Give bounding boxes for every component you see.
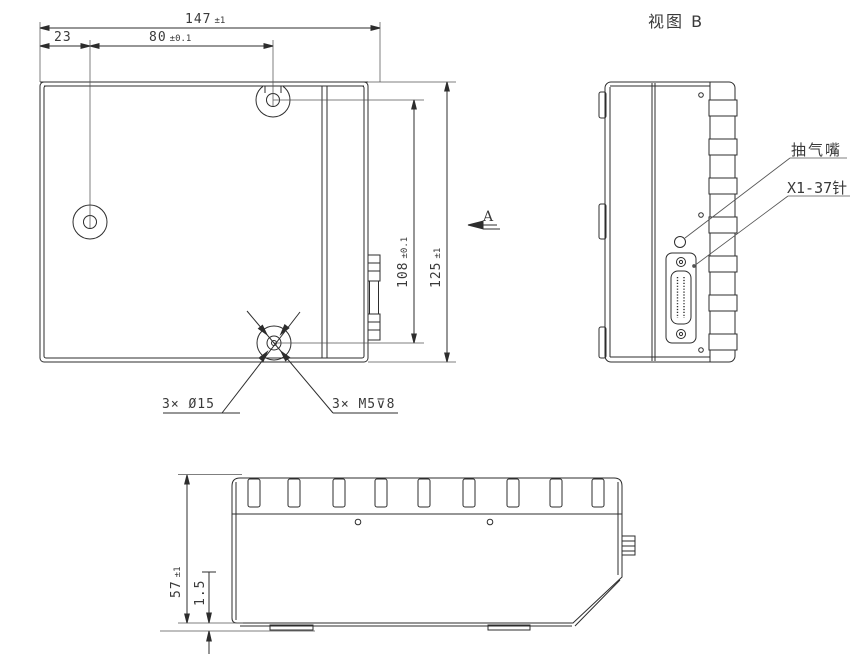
dim-left-offset-value: 23 — [54, 30, 72, 45]
side-connector-tabs — [368, 255, 380, 340]
view-b-title: 视图 B — [648, 8, 704, 32]
dim-base-thickness-value: 1.5 — [193, 580, 208, 606]
cooling-fin-slots-bottom — [248, 479, 604, 507]
connector-callout: X1-37针 — [787, 177, 847, 198]
drawing-linework — [0, 0, 867, 665]
dim-side-height: 57±1 — [169, 567, 184, 599]
side-knob — [622, 536, 635, 555]
dim-total-width-value: 147 — [185, 12, 211, 27]
dim-side-height-tol: ±1 — [173, 567, 183, 578]
front-body-outline — [40, 82, 368, 362]
dimension-lines-bottom — [185, 475, 216, 654]
nozzle-callout: 抽气嘴 — [791, 139, 842, 160]
side-b-inner-lines — [610, 82, 710, 362]
dimension-lines-front — [40, 26, 449, 362]
holes-cbore-callout: 3× Ø15 — [162, 397, 215, 412]
front-body-inner-outline — [44, 86, 364, 358]
dim-left-offset: 23 — [54, 30, 75, 45]
dim-hole-pitch-x-value: 80 — [149, 30, 167, 45]
front-extension-lines — [40, 22, 456, 362]
dim-total-height: 125±1 — [429, 248, 444, 288]
dim-total-height-value: 125 — [429, 262, 444, 288]
view-arrow-label: A — [483, 209, 493, 225]
dim-total-width-tol: ±1 — [214, 16, 225, 26]
side-view-b — [599, 82, 850, 362]
dim-hole-pitch-x: 80±0.1 — [149, 30, 191, 45]
bottom-view — [160, 475, 635, 655]
dim-side-height-value: 57 — [169, 580, 184, 598]
dim-hole-pitch-y-value: 108 — [396, 262, 411, 288]
dim-total-width: 147±1 — [185, 12, 225, 27]
side-b-screw-dots — [699, 93, 704, 353]
front-seam-lines — [322, 86, 327, 358]
connector-dsub-37pin — [666, 253, 696, 343]
front-view — [40, 22, 500, 413]
dim-total-height-tol: ±1 — [433, 248, 443, 259]
suction-nozzle-port — [675, 237, 686, 248]
holes-thread-callout: 3× M5⊽8 — [332, 397, 395, 412]
dim-base-thickness: 1.5 — [193, 577, 208, 606]
bottom-screw-dots — [355, 519, 493, 525]
cooling-fins-side-b — [709, 100, 737, 350]
engineering-drawing-canvas: 147±1 23 80±0.1 108±0.1 125±1 A 3× Ø15 3… — [0, 0, 867, 665]
dim-hole-pitch-y: 108±0.1 — [396, 237, 411, 288]
dim-hole-pitch-x-tol: ±0.1 — [170, 34, 192, 44]
dim-hole-pitch-y-tol: ±0.1 — [400, 237, 410, 259]
mounting-hole-top — [40, 79, 368, 117]
